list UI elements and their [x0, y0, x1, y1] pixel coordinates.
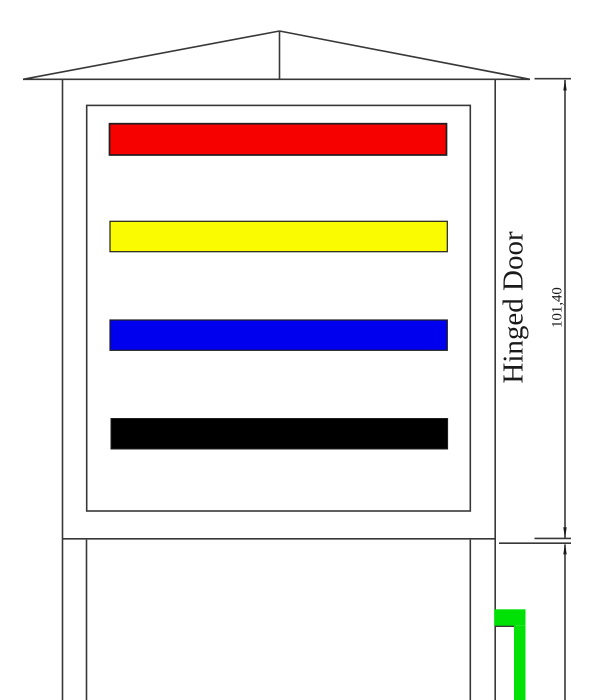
- svg-text:101,40: 101,40: [549, 287, 565, 328]
- svg-text:Hinged Door: Hinged Door: [498, 231, 530, 384]
